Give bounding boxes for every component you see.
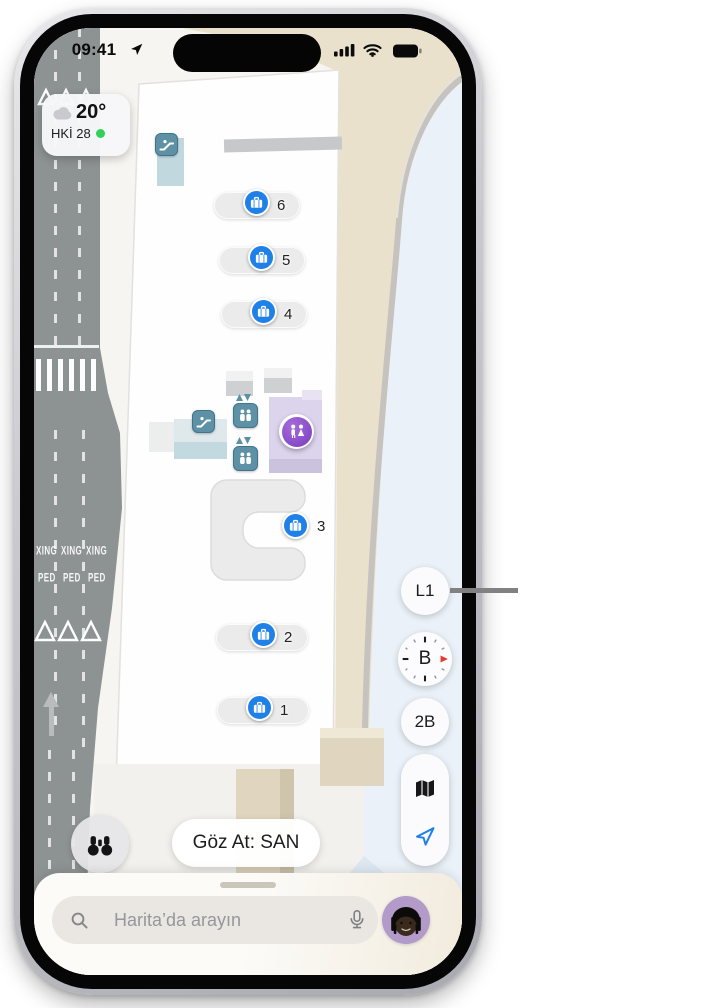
battery-icon xyxy=(393,44,422,58)
navigation-arrow-icon xyxy=(129,42,144,57)
lane-divider xyxy=(54,28,57,346)
search-input[interactable] xyxy=(114,896,344,944)
road-marking-ped: PED xyxy=(38,571,56,585)
locate-me-button[interactable] xyxy=(401,812,449,860)
baggage-claim-label: 3 xyxy=(317,518,325,535)
road-stop-line xyxy=(34,345,99,348)
map-mode-button[interactable] xyxy=(401,764,449,812)
floor-level-label: L1 xyxy=(416,581,435,601)
floor-level-button[interactable]: L1 xyxy=(401,567,449,615)
user-avatar[interactable] xyxy=(382,896,430,944)
escalator-icon[interactable] xyxy=(192,410,215,433)
baggage-claim-icon[interactable] xyxy=(250,621,277,648)
search-field[interactable] xyxy=(52,896,378,944)
air-quality-label: HKİ 28 xyxy=(51,126,91,141)
iphone-frame: XING XING XING PED PED PED xyxy=(14,8,482,995)
baggage-claim-icon[interactable] xyxy=(250,298,277,325)
drag-handle[interactable] xyxy=(220,882,276,888)
baggage-claim-label: 1 xyxy=(280,702,288,719)
road-marking-xing: XING xyxy=(36,544,57,558)
road-direction-arrow xyxy=(49,706,54,736)
baggage-claim-label: 4 xyxy=(284,306,292,323)
search-icon xyxy=(70,911,89,930)
compass-direction-label: B xyxy=(398,632,452,686)
iphone-bezel: XING XING XING PED PED PED xyxy=(20,14,476,989)
map-controls-pill xyxy=(401,754,449,866)
road-marking-ped: PED xyxy=(88,571,106,585)
status-bar-time: 09:41 xyxy=(58,40,130,60)
baggage-claim-icon[interactable] xyxy=(246,694,273,721)
air-quality-dot xyxy=(96,129,105,138)
road-marking-ped: PED xyxy=(63,571,81,585)
view-mode-label: 2B xyxy=(415,712,436,732)
lane-divider xyxy=(78,28,81,346)
location-arrow-icon xyxy=(413,824,437,848)
baggage-claim-icon[interactable] xyxy=(282,512,309,539)
binoculars-icon xyxy=(85,831,115,858)
restroom-icon[interactable] xyxy=(282,417,312,447)
wifi-icon xyxy=(363,43,382,57)
baggage-claim-icon[interactable] xyxy=(243,189,270,216)
elevator-icon[interactable] xyxy=(233,446,258,471)
baggage-claim-label: 5 xyxy=(282,252,290,269)
cellular-signal-icon xyxy=(334,43,356,57)
microphone-icon[interactable] xyxy=(346,909,368,931)
browse-pill[interactable]: Göz At: SAN xyxy=(172,819,320,867)
memoji-avatar xyxy=(382,896,430,944)
weather-widget[interactable]: 20° HKİ 28 xyxy=(42,94,130,156)
temperature-value: 20° xyxy=(76,101,106,124)
dynamic-island xyxy=(173,34,321,72)
escalator-icon[interactable] xyxy=(155,133,178,156)
road-marking-xing: XING xyxy=(61,544,82,558)
elevator-icon[interactable] xyxy=(233,403,258,428)
view-mode-button[interactable]: 2B xyxy=(401,698,449,746)
folded-map-icon xyxy=(413,777,437,800)
lane-divider xyxy=(82,430,85,750)
baggage-claim-label: 6 xyxy=(277,197,285,214)
elevator-arrows-icon xyxy=(236,437,251,444)
road-direction-arrow xyxy=(43,692,59,707)
look-around-button[interactable] xyxy=(71,815,129,873)
search-panel xyxy=(34,873,462,975)
compass-button[interactable]: B xyxy=(398,632,452,686)
browse-label: Göz At: SAN xyxy=(193,832,300,854)
elevator-arrows-icon xyxy=(236,394,251,401)
cloud-icon xyxy=(51,106,73,120)
baggage-claim-icon[interactable] xyxy=(248,244,275,271)
callout-line xyxy=(450,588,518,593)
road-marking-xing: XING xyxy=(86,544,107,558)
crosswalk xyxy=(36,359,97,391)
baggage-claim-label: 2 xyxy=(284,629,292,646)
maps-app-screen: XING XING XING PED PED PED xyxy=(34,28,462,975)
